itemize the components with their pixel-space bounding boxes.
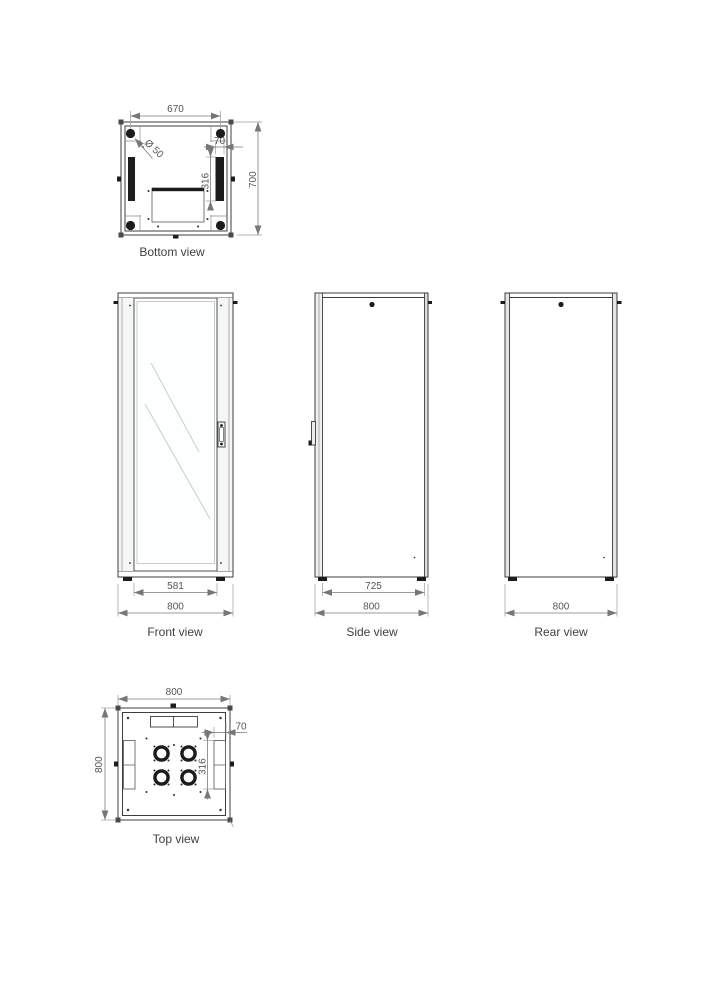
technical-drawing-page: 670 Ø 50 70 316 700 Bottom view	[0, 0, 708, 1000]
screw-hole	[200, 791, 202, 793]
corner-cap	[119, 233, 124, 238]
cable-slot-left	[128, 157, 135, 201]
screw-hole	[129, 562, 131, 564]
door-handle-profile	[312, 422, 316, 446]
rear-view-label: Rear view	[534, 625, 588, 639]
dim-70: 70	[214, 136, 226, 147]
edge-tab	[173, 235, 179, 239]
edge-tab	[171, 704, 177, 708]
foot	[216, 577, 225, 581]
foot	[123, 577, 132, 581]
handle-pin	[220, 424, 223, 427]
screw-hole	[603, 557, 605, 559]
side-view-label: Side view	[346, 625, 398, 639]
top-view-drawing: 800 800 70 316 Top view	[94, 687, 247, 846]
top-view-label: Top view	[153, 832, 200, 846]
screw-hole	[220, 562, 222, 564]
top-hole	[369, 302, 374, 307]
top-hole	[558, 302, 563, 307]
cable-slot-right	[216, 157, 225, 201]
edge-tab	[114, 762, 118, 767]
dim-670: 670	[167, 104, 184, 115]
foot	[605, 577, 614, 581]
dim-316: 316	[198, 758, 209, 775]
fan-bottom-left	[154, 770, 170, 786]
hinge-pin	[233, 301, 238, 304]
cable-entry-opening	[152, 188, 204, 222]
corner-screw	[219, 809, 221, 811]
dim-725: 725	[365, 581, 382, 592]
corner-cap	[228, 706, 233, 711]
screw-hole	[148, 190, 150, 192]
door-lock-plate	[220, 428, 224, 442]
front-bottom-rail	[118, 571, 233, 577]
corner-screw	[127, 809, 129, 811]
dim-316: 316	[201, 172, 212, 189]
dim-800-width: 800	[166, 687, 183, 698]
cable-entry-brush	[152, 188, 204, 191]
corner-cap	[228, 818, 233, 823]
corner-cap	[229, 233, 234, 238]
edge-tab	[231, 177, 235, 182]
edge-tab	[117, 177, 121, 182]
glass-door-pane	[137, 302, 215, 564]
dim-700: 700	[248, 171, 259, 188]
corner-cap	[229, 120, 234, 125]
screw-hole	[207, 218, 209, 220]
dim-581: 581	[167, 581, 184, 592]
edge-tab	[230, 762, 234, 767]
bottom-view-drawing: 670 Ø 50 70 316 700 Bottom view	[117, 104, 262, 259]
screw-hole	[220, 305, 222, 307]
front-view-drawing: 581 800 Front view	[114, 293, 238, 639]
side-view-drawing: 725 800 Side view	[309, 293, 433, 639]
foot	[508, 577, 517, 581]
side-cabinet-outline	[315, 293, 428, 577]
screw-hole	[129, 305, 131, 307]
hinge-pin	[617, 301, 622, 304]
bottom-view-label: Bottom view	[139, 245, 205, 259]
foot	[417, 577, 426, 581]
screw-hole	[146, 738, 148, 740]
corner-hole	[126, 221, 135, 230]
corner-hole	[216, 221, 225, 230]
corner-screw	[219, 717, 221, 719]
dim-800: 800	[167, 602, 184, 613]
dim-70: 70	[235, 722, 247, 733]
corner-cap	[116, 818, 121, 823]
screw-hole	[173, 744, 175, 746]
screw-hole	[148, 218, 150, 220]
fan-top-right	[181, 746, 197, 762]
dim-800: 800	[553, 602, 570, 613]
hinge-pin	[428, 301, 432, 304]
hinge-pin	[114, 301, 119, 304]
hinge-pin	[501, 301, 506, 304]
corner-hole	[126, 129, 135, 138]
corner-cap	[119, 120, 124, 125]
rear-cabinet-outline	[505, 293, 617, 577]
corner-screw	[127, 717, 129, 719]
top-cabinet-inner-frame	[123, 713, 226, 816]
dim-hole-diameter: Ø 50	[142, 138, 166, 161]
front-view-label: Front view	[147, 625, 203, 639]
rear-view-drawing: 800 Rear view	[501, 293, 622, 639]
screw-hole	[146, 791, 148, 793]
foot	[318, 577, 327, 581]
screw-hole	[173, 794, 175, 796]
screw-hole	[197, 226, 199, 228]
fan-bottom-right	[181, 770, 197, 786]
screw-hole	[200, 738, 202, 740]
technical-drawing-canvas: 670 Ø 50 70 316 700 Bottom view	[0, 0, 708, 1000]
handle-latch	[309, 441, 312, 446]
screw-hole	[414, 557, 416, 559]
dim-800-depth: 800	[94, 756, 105, 773]
fan-top-left	[154, 746, 170, 762]
cable-entry-plate	[151, 717, 198, 728]
corner-cap	[116, 706, 121, 711]
screw-hole	[157, 226, 159, 228]
front-top-rail	[118, 293, 233, 298]
handle-pin	[220, 443, 223, 446]
dim-800: 800	[363, 602, 380, 613]
